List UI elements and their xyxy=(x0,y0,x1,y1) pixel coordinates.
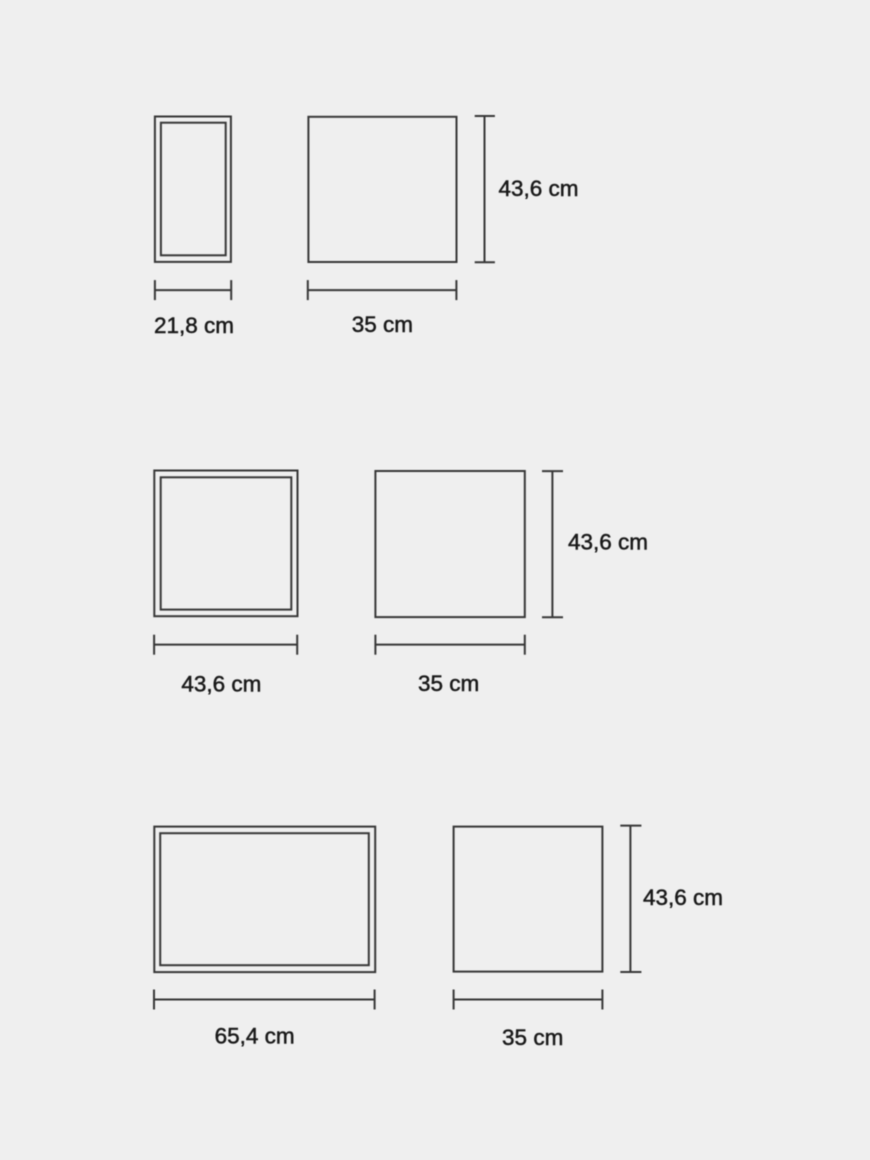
svg-text:43,6 cm: 43,6 cm xyxy=(499,176,579,201)
svg-text:65,4 cm: 65,4 cm xyxy=(215,1024,295,1049)
svg-text:43,6 cm: 43,6 cm xyxy=(568,530,648,555)
svg-text:43,6 cm: 43,6 cm xyxy=(643,885,723,910)
svg-text:35 cm: 35 cm xyxy=(502,1025,563,1050)
svg-text:43,6 cm: 43,6 cm xyxy=(181,672,261,697)
svg-text:35 cm: 35 cm xyxy=(352,312,413,337)
svg-text:35 cm: 35 cm xyxy=(418,671,479,696)
svg-text:21,8 cm: 21,8 cm xyxy=(154,313,234,338)
